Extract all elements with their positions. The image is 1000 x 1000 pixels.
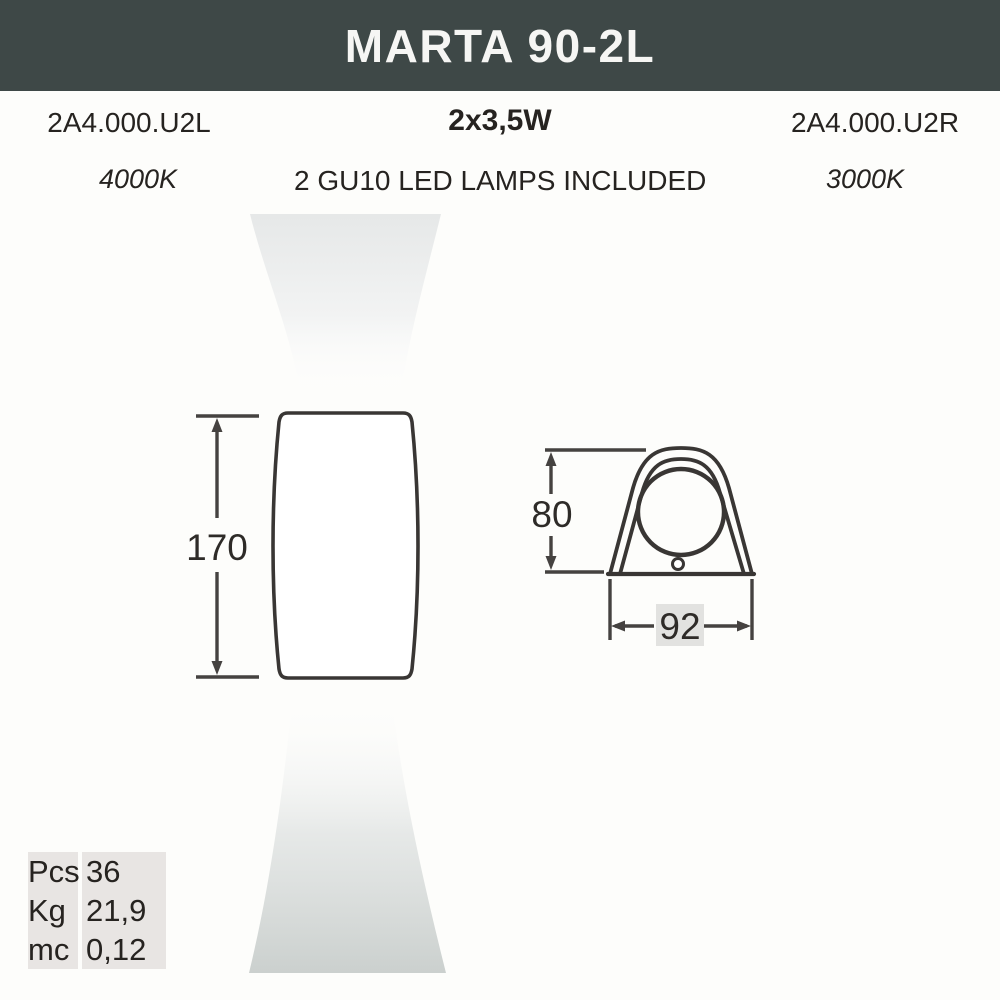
packaging-info: Pcs 36 Kg 21,9 mc 0,12	[28, 852, 166, 969]
technical-drawing: 170 80 92	[0, 0, 1000, 1000]
mc-value: 0,12	[82, 930, 166, 969]
packaging-row-kg: Kg 21,9	[28, 891, 166, 930]
front-height-value: 170	[186, 527, 248, 568]
packaging-row-mc: mc 0,12	[28, 930, 166, 969]
mc-label: mc	[28, 930, 78, 969]
packaging-row-pcs: Pcs 36	[28, 852, 166, 891]
lamp-opening-circle	[638, 469, 724, 555]
pcs-label: Pcs	[28, 852, 78, 891]
arrow-down-icon	[546, 556, 557, 570]
side-height-value: 80	[531, 494, 572, 535]
front-body-outline	[273, 413, 418, 678]
light-beam-down	[249, 694, 446, 973]
side-width-value: 92	[659, 606, 700, 647]
arrow-right-icon	[737, 621, 751, 632]
arrow-up-icon	[546, 452, 557, 466]
arrow-up-icon	[212, 418, 223, 432]
arrow-down-icon	[212, 661, 223, 675]
front-view	[273, 413, 418, 678]
kg-value: 21,9	[82, 891, 166, 930]
light-beam-up	[250, 214, 441, 398]
arrow-left-icon	[611, 621, 625, 632]
kg-label: Kg	[28, 891, 78, 930]
side-view	[608, 448, 754, 574]
spec-sheet: MARTA 90-2L 2A4.000.U2L 2x3,5W 2A4.000.U…	[0, 0, 1000, 1000]
pcs-value: 36	[82, 852, 166, 891]
screw-hole-circle	[673, 559, 684, 570]
